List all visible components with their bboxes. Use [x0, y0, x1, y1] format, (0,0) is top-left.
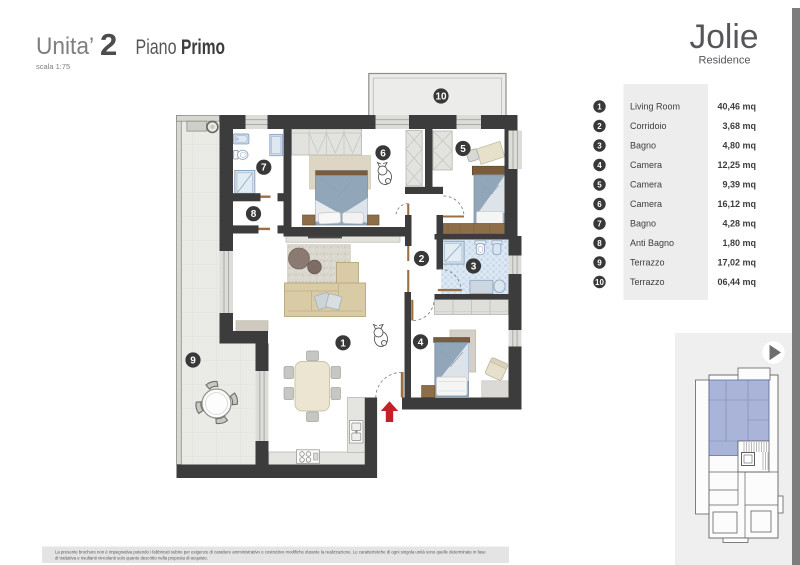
svg-text:Living Room: Living Room	[630, 102, 680, 112]
svg-text:5: 5	[460, 144, 466, 155]
svg-text:3: 3	[597, 141, 602, 150]
svg-text:La presente brochure non è imp: La presente brochure non è impegnativa p…	[55, 550, 486, 555]
svg-text:4,28 mq: 4,28 mq	[722, 219, 756, 229]
svg-text:6: 6	[380, 148, 386, 159]
svg-text:2: 2	[419, 254, 425, 265]
svg-text:5: 5	[597, 180, 602, 189]
svg-text:Unita’: Unita’	[36, 33, 94, 60]
svg-text:1: 1	[597, 102, 602, 111]
svg-text:10: 10	[595, 278, 604, 287]
svg-text:4,80 mq: 4,80 mq	[722, 141, 756, 151]
svg-text:7: 7	[261, 163, 267, 174]
svg-text:Jolie: Jolie	[690, 18, 759, 56]
svg-text:9,39 mq: 9,39 mq	[722, 180, 756, 190]
svg-text:17,02 mq: 17,02 mq	[717, 258, 756, 268]
svg-text:Bagno: Bagno	[630, 141, 656, 151]
svg-text:Camera: Camera	[630, 160, 662, 170]
svg-text:4: 4	[597, 161, 602, 170]
svg-text:2: 2	[100, 27, 117, 62]
svg-text:Camera: Camera	[630, 180, 662, 190]
svg-text:Piano: Piano	[136, 36, 177, 59]
svg-text:3: 3	[471, 262, 477, 273]
svg-text:16,12 mq: 16,12 mq	[717, 199, 756, 209]
svg-text:Corridoio: Corridoio	[630, 121, 667, 131]
svg-text:Terrazzo: Terrazzo	[630, 258, 665, 268]
svg-text:9: 9	[190, 356, 196, 367]
svg-text:8: 8	[597, 239, 602, 248]
svg-text:12,25 mq: 12,25 mq	[717, 160, 756, 170]
svg-text:3,68 mq: 3,68 mq	[722, 121, 756, 131]
svg-text:1,80 mq: 1,80 mq	[722, 238, 756, 248]
svg-text:Terrazzo: Terrazzo	[630, 277, 665, 287]
svg-text:di trattativa e risultanti vin: di trattativa e risultanti vincolanti so…	[55, 556, 208, 561]
svg-text:9: 9	[597, 258, 602, 267]
svg-text:6: 6	[597, 200, 602, 209]
svg-text:2: 2	[597, 122, 602, 131]
svg-text:06,44 mq: 06,44 mq	[717, 277, 756, 287]
svg-text:40,46 mq: 40,46 mq	[717, 102, 756, 112]
svg-text:Primo: Primo	[181, 36, 225, 59]
svg-text:Bagno: Bagno	[630, 219, 656, 229]
svg-text:1: 1	[340, 338, 346, 349]
svg-text:4: 4	[418, 337, 424, 348]
svg-text:scala 1:75: scala 1:75	[36, 62, 70, 71]
svg-text:10: 10	[435, 92, 447, 103]
svg-text:Anti Bagno: Anti Bagno	[630, 238, 674, 248]
svg-text:8: 8	[251, 209, 257, 220]
svg-text:Camera: Camera	[630, 199, 662, 209]
svg-text:Residence: Residence	[699, 55, 751, 67]
svg-text:7: 7	[597, 219, 602, 228]
